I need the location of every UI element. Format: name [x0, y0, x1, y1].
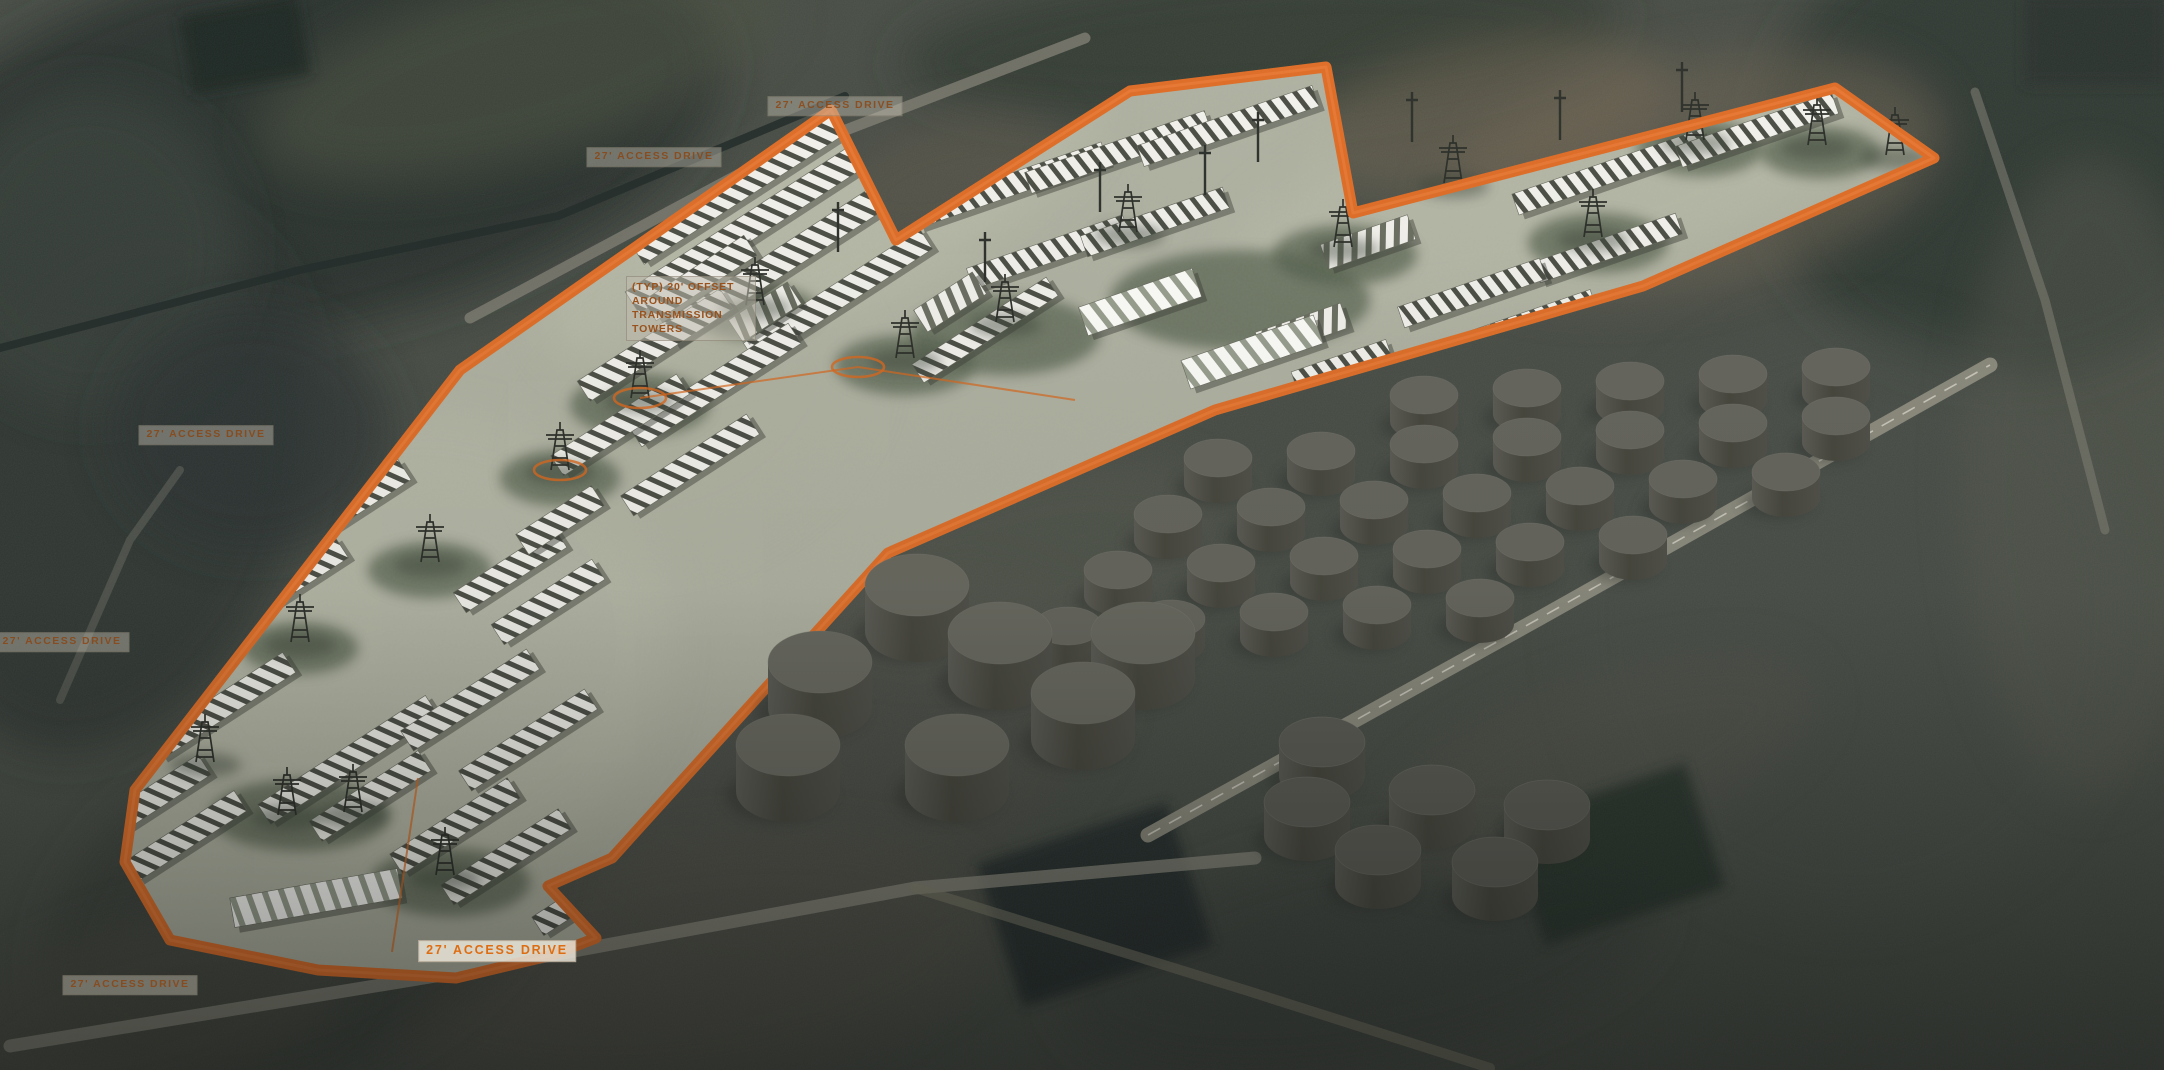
vignette-overlay [0, 0, 2164, 1070]
site-plan-view: (TYP) 20' OFFSET AROUND TRANSMISSION TOW… [0, 0, 2164, 1070]
offset-note-line: TRANSMISSION [632, 309, 750, 323]
access-drive-label: 27' ACCESS DRIVE [768, 96, 903, 116]
access-drive-label: 27' ACCESS DRIVE [418, 940, 576, 962]
aerial-rendering [0, 0, 2164, 1070]
access-drive-label: 27' ACCESS DRIVE [0, 632, 130, 652]
offset-note-line: AROUND [632, 295, 750, 309]
access-drive-label: 27' ACCESS DRIVE [139, 425, 274, 445]
access-drive-label: 27' ACCESS DRIVE [587, 147, 722, 167]
access-drive-label: 27' ACCESS DRIVE [63, 975, 198, 995]
offset-note-line: TOWERS [632, 323, 750, 337]
offset-note-label: (TYP) 20' OFFSET AROUND TRANSMISSION TOW… [626, 276, 756, 341]
offset-note-line: (TYP) 20' OFFSET [632, 281, 750, 295]
